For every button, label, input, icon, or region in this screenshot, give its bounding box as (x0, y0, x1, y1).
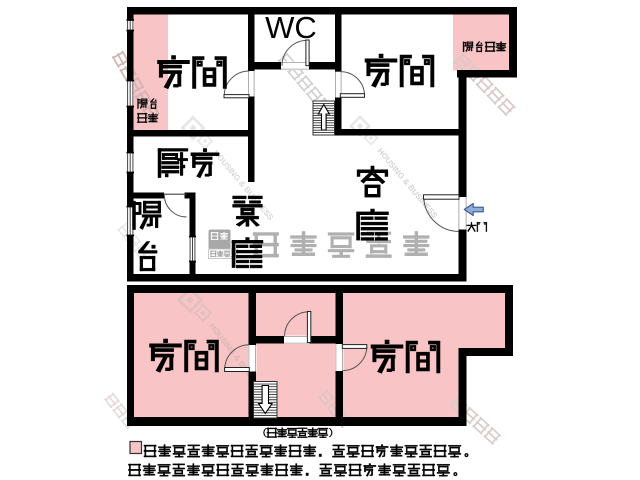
svg-text:WC: WC (265, 10, 317, 45)
